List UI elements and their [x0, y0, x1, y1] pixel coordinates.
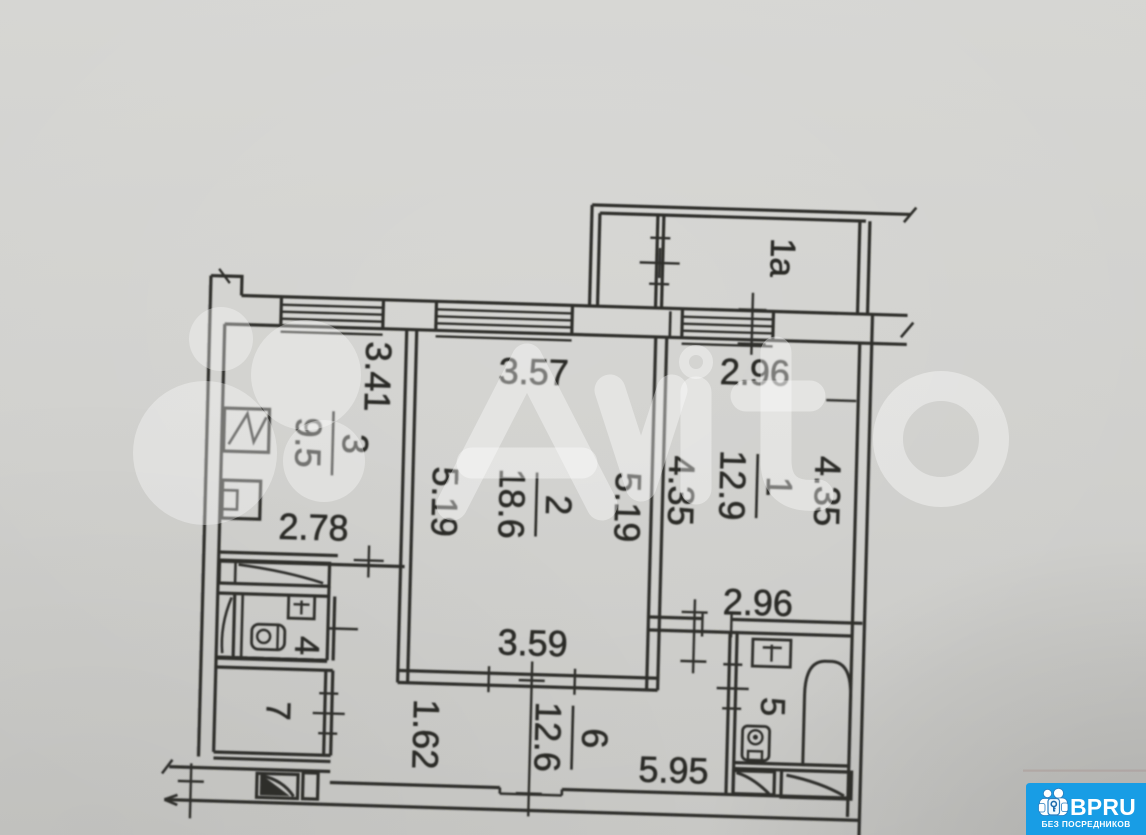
svg-text:БЕЗ ПОСРЕДНИКОВ: БЕЗ ПОСРЕДНИКОВ [1041, 819, 1130, 829]
svg-text:3.59: 3.59 [497, 621, 568, 664]
svg-text:5: 5 [753, 697, 791, 717]
svg-text:7: 7 [259, 701, 297, 721]
svg-text:2.78: 2.78 [278, 506, 349, 549]
svg-text:BPRU: BPRU [1070, 794, 1136, 820]
svg-text:2: 2 [538, 495, 580, 516]
svg-text:12.9: 12.9 [711, 450, 754, 521]
svg-text:1a: 1a [762, 238, 802, 279]
svg-text:3.41: 3.41 [357, 341, 400, 412]
svg-text:5.95: 5.95 [638, 749, 709, 792]
svg-text:4: 4 [287, 636, 325, 656]
svg-text:1.62: 1.62 [404, 699, 447, 770]
svg-text:2.96: 2.96 [722, 581, 793, 624]
svg-text:18.6: 18.6 [490, 468, 533, 539]
svg-text:12.6: 12.6 [526, 701, 569, 772]
svg-text:6: 6 [574, 728, 616, 749]
